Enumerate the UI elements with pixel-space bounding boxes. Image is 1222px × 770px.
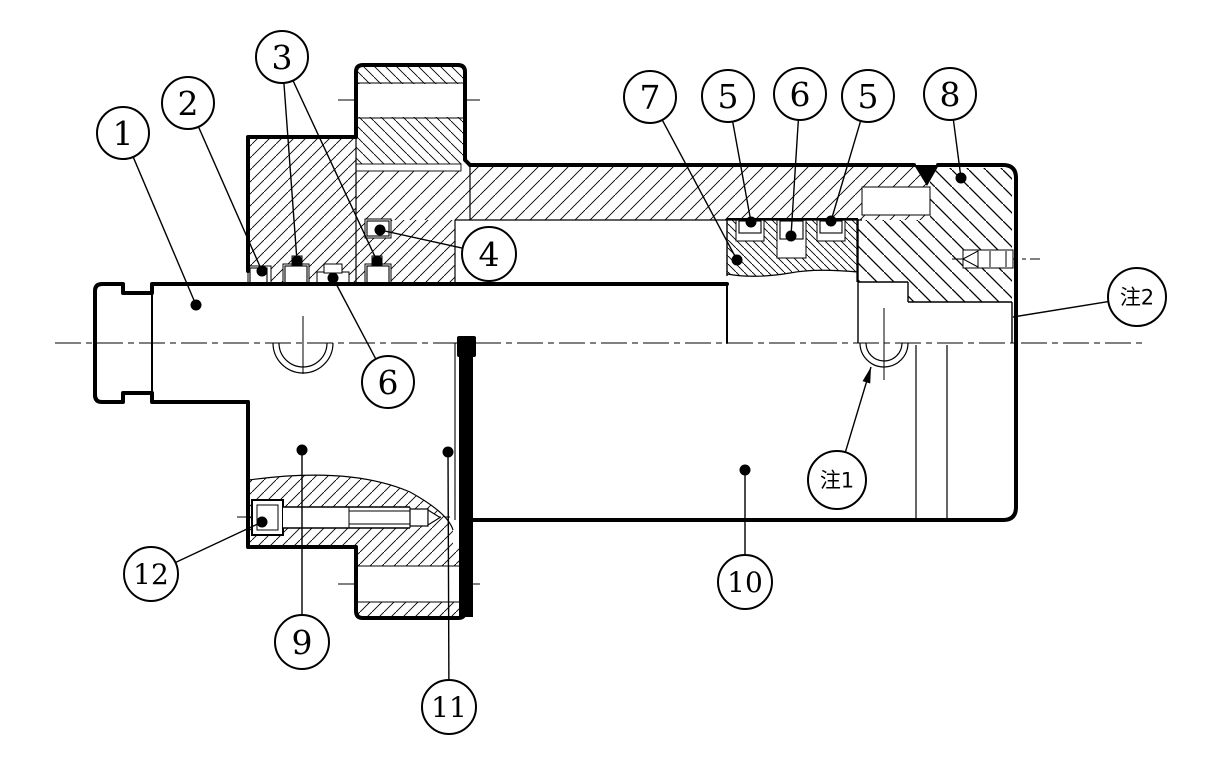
- callout-label-10: 10: [727, 566, 763, 599]
- callout-label-5: 5: [718, 77, 739, 116]
- callout-label-6: 6: [378, 363, 399, 402]
- top-port-bore: [357, 84, 464, 117]
- callout-label-5: 5: [858, 77, 879, 116]
- callout-label-1: 1: [113, 114, 134, 153]
- leader-dot: [826, 216, 837, 227]
- callout-label-12: 12: [133, 558, 169, 591]
- callout-label-8: 8: [940, 75, 961, 114]
- callout-label-9: 9: [292, 623, 313, 662]
- leader-dot: [443, 447, 454, 458]
- leader-dot: [257, 517, 268, 528]
- leader-dot: [740, 465, 751, 476]
- callout-label-2: 2: [178, 84, 199, 123]
- engineering-drawing-page: 12347565869101112注1注2: [0, 0, 1222, 770]
- leader-dot: [375, 225, 386, 236]
- end-cap-spigot-groove: [862, 187, 930, 215]
- seal-6a-tab: [324, 264, 342, 273]
- callout-label-11: 11: [431, 691, 467, 724]
- callout-label-注2: 注2: [1120, 286, 1154, 310]
- seal-3b: [367, 266, 389, 283]
- leader-dot: [328, 273, 339, 284]
- barrel-ring-weld: [457, 336, 476, 357]
- leader-dot: [191, 300, 202, 311]
- leader-line: [1013, 302, 1108, 317]
- barrel-wall-section: [470, 166, 930, 220]
- callout-label-注1: 注1: [820, 469, 854, 493]
- flange-ring-section: [356, 171, 470, 220]
- boss-joint-gap: [356, 164, 461, 171]
- callout-label-7: 7: [640, 78, 661, 117]
- leader-dot: [292, 256, 303, 267]
- callout-label-3: 3: [272, 38, 293, 77]
- leader-dot: [786, 231, 797, 242]
- cylinder-section-drawing: 12347565869101112注1注2: [0, 0, 1222, 770]
- leader-line: [333, 278, 376, 359]
- leader-line: [448, 452, 449, 680]
- hatched-sections: [248, 65, 1012, 618]
- leader-dot: [297, 445, 308, 456]
- leader-arrow: [863, 367, 871, 383]
- leader-dot: [956, 173, 967, 184]
- callout-label-6: 6: [790, 75, 811, 114]
- leader-dot: [372, 256, 383, 267]
- seal-3a: [285, 266, 307, 283]
- callout-label-4: 4: [479, 235, 500, 274]
- leader-dot: [257, 266, 268, 277]
- leader-dot: [732, 255, 743, 266]
- leader-dot: [746, 217, 757, 228]
- rod-bottom-profile: [95, 393, 248, 402]
